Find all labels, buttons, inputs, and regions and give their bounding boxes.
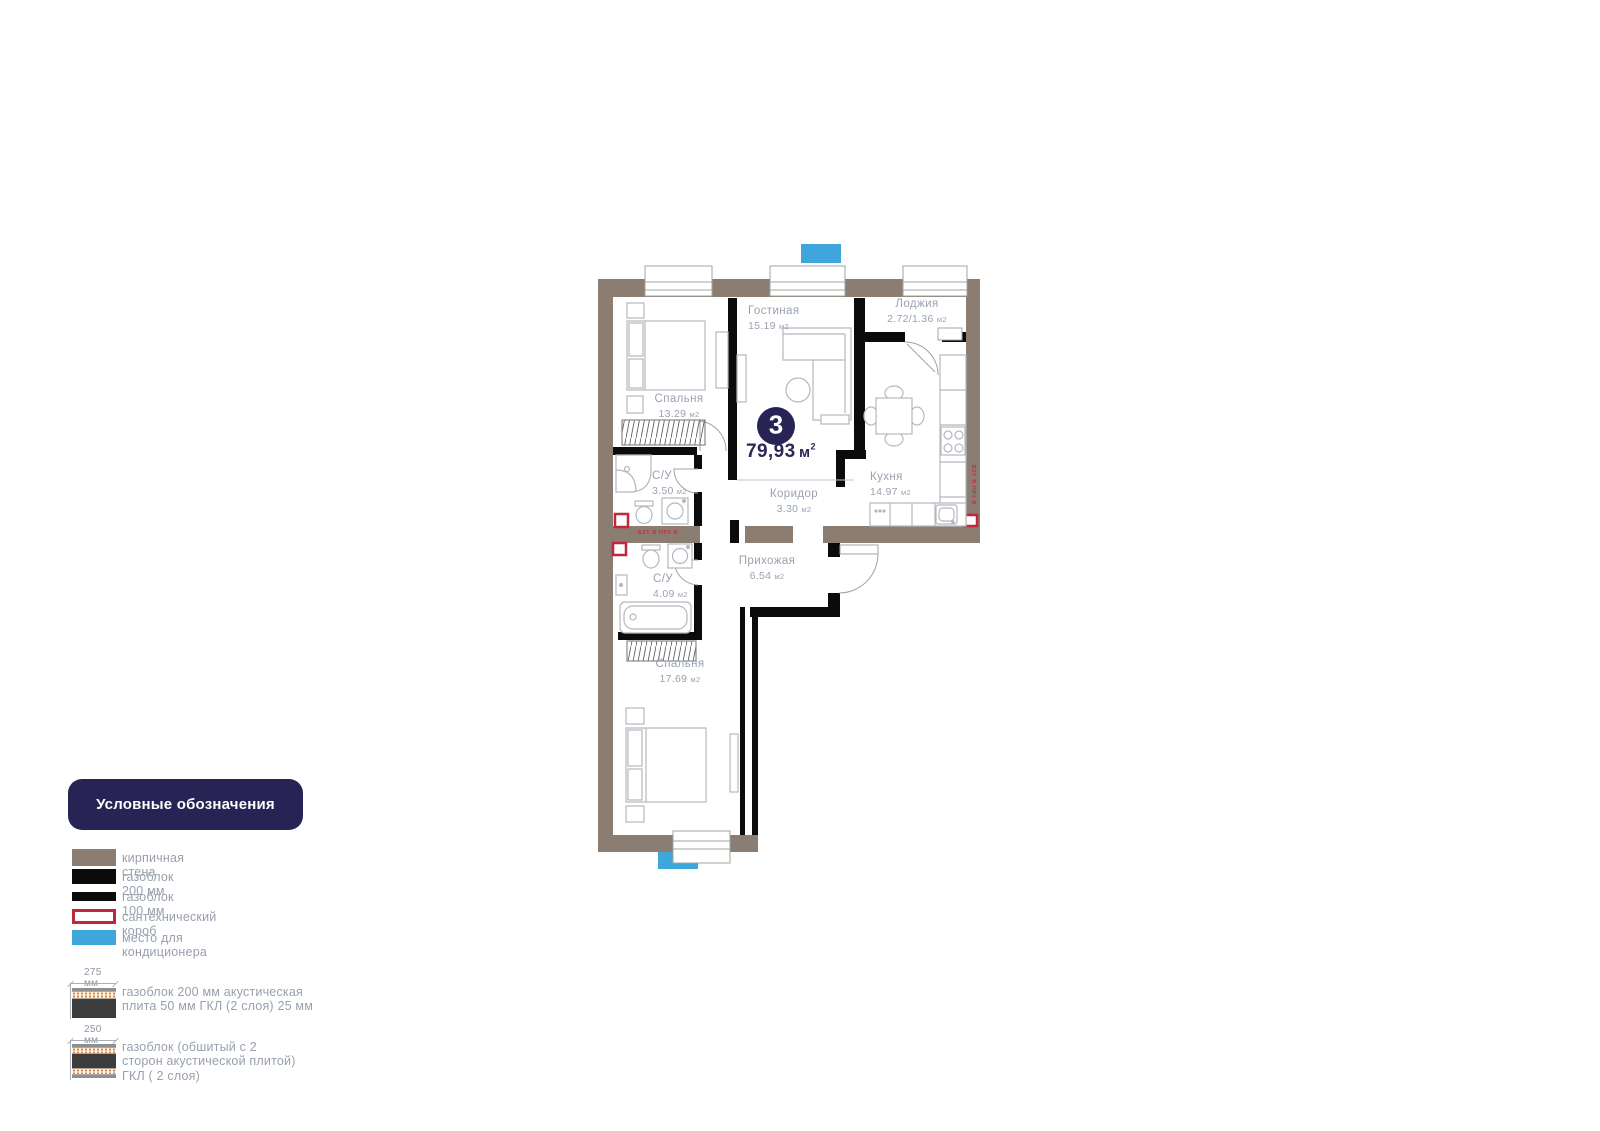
plumbing-swatch xyxy=(72,909,116,924)
burner xyxy=(944,444,952,452)
room-label-kitchen: Кухня 14.97 м2 xyxy=(870,471,911,498)
window-bedroom1 xyxy=(645,266,712,296)
dining-table xyxy=(876,398,912,434)
balcony-door-panel xyxy=(938,328,962,340)
dimension-extension xyxy=(70,983,71,1019)
nightstand xyxy=(626,806,644,822)
shelf-unit xyxy=(716,332,728,388)
room-label-bedroom1: Спальня 13.29 м2 xyxy=(654,393,703,420)
apartment-total-area: 79,93 м2 xyxy=(746,441,816,463)
burner xyxy=(944,431,952,439)
riser-label-vertical: Б2Т В ПР3 В xyxy=(966,463,976,507)
wall-kitchen-corner-v xyxy=(836,450,845,487)
window-living xyxy=(770,266,845,296)
acoustic-250-swatch xyxy=(72,1044,116,1078)
room-label-bedroom2: Спальня 17.69 м2 xyxy=(655,658,704,685)
coffee-table xyxy=(786,378,810,402)
legend-title: Условные обозначения xyxy=(68,779,303,830)
legend: Условные обозначения кирпичная стена газ… xyxy=(68,779,368,1109)
wall-loggia-left-part xyxy=(865,332,905,342)
acoustic-275-swatch xyxy=(72,988,116,1018)
brick-swatch xyxy=(72,849,116,866)
nightstand xyxy=(626,708,644,724)
apartment-number: 3 xyxy=(769,409,783,440)
wall-double-a xyxy=(740,607,745,835)
dimension-label: 250 мм xyxy=(84,1024,102,1046)
toilet-tank xyxy=(642,545,660,550)
wall-hall-bottom xyxy=(750,607,838,617)
pillow xyxy=(629,323,643,356)
dimension-line xyxy=(70,983,116,984)
riser-label-horizontal: Б2Т В ПР3 В xyxy=(620,530,696,536)
wall-bath1-top xyxy=(613,447,697,455)
nightstand xyxy=(627,303,644,318)
toilet-bowl xyxy=(643,550,659,568)
tv-stand xyxy=(737,355,746,402)
wall-bath2-right-b xyxy=(694,585,702,640)
gasblock-200-swatch xyxy=(72,869,116,884)
gasblock-100-swatch xyxy=(72,892,116,901)
plumbing-box-bath2 xyxy=(613,543,626,555)
wall-left xyxy=(598,279,613,852)
wall-corridor-stub xyxy=(730,520,739,543)
wall-bedroom1-living xyxy=(728,298,737,480)
floor-plan: Спальня 13.29 м2 Гостиная 15.19 м2 Лоджи… xyxy=(596,230,996,890)
room-label-corridor: Коридор 3.30 м2 xyxy=(770,488,818,515)
furniture-bedroom1 xyxy=(622,303,728,445)
entrance-jamb-top xyxy=(828,543,840,557)
room-label-hall: Прихожая 6.54 м2 xyxy=(739,555,796,582)
dimension-extension xyxy=(70,1040,71,1080)
wall-double-b xyxy=(752,607,758,835)
pillow xyxy=(628,769,642,800)
washer-drum xyxy=(673,549,688,564)
toilet-bowl xyxy=(636,507,652,524)
window-loggia xyxy=(903,266,967,296)
window-bedroom2 xyxy=(673,831,730,863)
washer-drum xyxy=(667,503,683,519)
sofa-ottoman xyxy=(821,415,849,424)
entrance-door-leaf xyxy=(840,545,878,554)
room-label-bath1: С/У 3.50 м2 xyxy=(652,470,687,497)
toilet-tank xyxy=(635,501,653,506)
wall-bottom-kitchen xyxy=(823,526,980,543)
burner xyxy=(955,431,963,439)
pillow xyxy=(628,730,642,766)
ac-spot-top xyxy=(801,244,841,263)
shelf-unit xyxy=(730,734,738,792)
burner xyxy=(955,444,963,452)
dimension-label: 275 мм xyxy=(84,967,102,989)
wardrobe-hatched xyxy=(622,420,705,445)
plumbing-box-bath1 xyxy=(615,514,628,527)
pillow xyxy=(629,359,643,388)
ac-swatch xyxy=(72,930,116,945)
shower-drain xyxy=(625,467,630,472)
entrance-door-arc xyxy=(839,554,878,593)
page: Спальня 13.29 м2 Гостиная 15.19 м2 Лоджи… xyxy=(0,0,1600,1131)
wall-bath1-right-a xyxy=(694,455,702,469)
wall-mid-segment xyxy=(745,526,793,543)
wall-living-kitchen xyxy=(854,298,865,450)
wall-bath1-right-b xyxy=(694,492,702,526)
dimension-line xyxy=(70,1040,116,1041)
door-balcony-leaf xyxy=(907,344,935,372)
nightstand xyxy=(627,396,643,413)
shower xyxy=(616,455,651,492)
furniture-living xyxy=(737,328,851,424)
room-label-loggia: Лоджия 2.72/1.36 м2 xyxy=(887,298,947,325)
sofa-l-shape xyxy=(783,328,851,420)
room-label-bath2: С/У 4.09 м2 xyxy=(653,573,688,600)
wall-bath2-right-a xyxy=(694,543,702,560)
furniture-kitchen xyxy=(864,355,966,526)
room-label-living: Гостиная 15.19 м2 xyxy=(748,305,799,332)
bathtub-drain xyxy=(630,614,636,620)
kitchen-sink-bowl xyxy=(939,508,954,521)
